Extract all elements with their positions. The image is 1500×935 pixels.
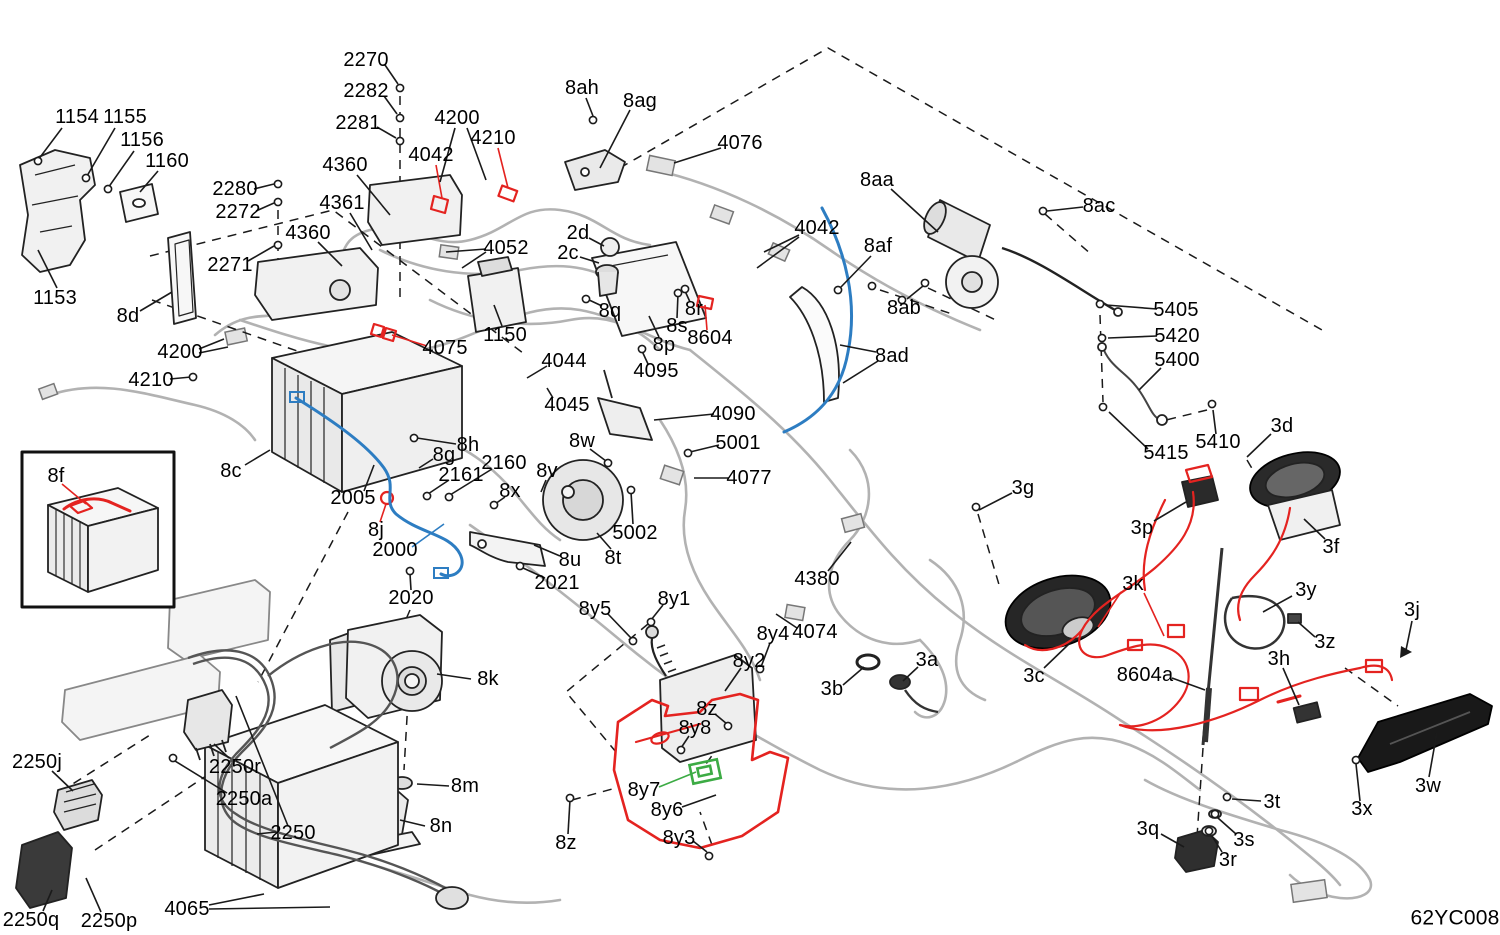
part-label-8ac: 8ac xyxy=(1083,196,1116,216)
part-label-8x: 8x xyxy=(499,481,521,501)
part-label-4042: 4042 xyxy=(408,145,453,165)
part-label-3t: 3t xyxy=(1263,792,1280,812)
part-label-4200: 4200 xyxy=(157,342,202,362)
part-label-4074: 4074 xyxy=(792,622,837,642)
part-label-8y1: 8y1 xyxy=(658,589,691,609)
part-label-4075: 4075 xyxy=(422,338,467,358)
part-label-2281: 2281 xyxy=(335,113,380,133)
part-label-3x: 3x xyxy=(1351,799,1373,819)
part-label-4045: 4045 xyxy=(544,395,589,415)
part-label-8y7: 8y7 xyxy=(628,780,661,800)
part-label-4076: 4076 xyxy=(717,133,762,153)
part-label-2021: 2021 xyxy=(534,573,579,593)
part-label-1155: 1155 xyxy=(103,107,147,127)
part-label-3g: 3g xyxy=(1012,478,1035,498)
part-label-8z: 8z xyxy=(555,833,577,853)
part-label-4210: 4210 xyxy=(128,370,173,390)
part-label-8m: 8m xyxy=(451,776,479,796)
part-label-4200: 4200 xyxy=(434,108,479,128)
part-label-2271: 2271 xyxy=(207,255,252,275)
part-label-4044: 4044 xyxy=(541,351,586,371)
part-label-1160: 1160 xyxy=(145,151,189,171)
part-label-8y4: 8y4 xyxy=(757,624,790,644)
part-label-3d: 3d xyxy=(1271,416,1294,436)
part-label-2005: 2005 xyxy=(330,488,375,508)
part-label-2280: 2280 xyxy=(212,179,257,199)
part-label-8ab: 8ab xyxy=(887,298,921,318)
part-label-8d: 8d xyxy=(117,306,140,326)
part-label-2250: 2250 xyxy=(270,823,315,843)
part-label-3k: 3k xyxy=(1122,574,1144,594)
part-label-4095: 4095 xyxy=(633,361,678,381)
part-label-3a: 3a xyxy=(916,650,939,670)
part-label-3z: 3z xyxy=(1314,632,1336,652)
part-label-3q: 3q xyxy=(1137,819,1160,839)
part-label-8u: 8u xyxy=(559,550,582,570)
part-label-1153: 1153 xyxy=(33,288,77,308)
part-label-8ad: 8ad xyxy=(875,346,909,366)
part-label-8v: 8v xyxy=(536,461,558,481)
part-label-2161: 2161 xyxy=(438,465,483,485)
part-label-3h: 3h xyxy=(1268,649,1291,669)
part-label-8f: 8f xyxy=(47,466,64,486)
part-label-8604: 8604 xyxy=(687,328,732,348)
part-label-1154: 1154 xyxy=(55,107,99,127)
part-label-3r: 3r xyxy=(1219,850,1237,870)
part-label-2250p: 2250p xyxy=(81,911,138,931)
part-label-8q: 8q xyxy=(599,301,622,321)
part-label-4065: 4065 xyxy=(164,899,209,919)
part-label-5405: 5405 xyxy=(1153,300,1198,320)
part-label-8j: 8j xyxy=(368,520,384,540)
part-label-3y: 3y xyxy=(1295,580,1317,600)
part-label-4210: 4210 xyxy=(470,128,515,148)
part-label-8y8: 8y8 xyxy=(679,718,712,738)
part-label-5420: 5420 xyxy=(1154,326,1199,346)
part-label-3f: 3f xyxy=(1322,537,1339,557)
part-label-1156: 1156 xyxy=(120,130,164,150)
part-label-8s: 8s xyxy=(666,316,688,336)
part-label-3c: 3c xyxy=(1023,666,1045,686)
part-label-2250a: 2250a xyxy=(216,789,273,809)
part-label-4360: 4360 xyxy=(322,155,367,175)
part-label-8n: 8n xyxy=(430,816,453,836)
part-label-8ag: 8ag xyxy=(623,91,657,111)
part-label-8h: 8h xyxy=(457,435,480,455)
part-label-2000: 2000 xyxy=(372,540,417,560)
drawing-code: 62YC008 xyxy=(1411,908,1500,929)
part-label-4090: 4090 xyxy=(710,404,755,424)
part-label-4077: 4077 xyxy=(726,468,771,488)
part-label-8y2: 8y2 xyxy=(733,651,766,671)
part-label-8aa: 8aa xyxy=(860,170,894,190)
part-label-1150: 1150 xyxy=(483,325,527,345)
part-label-5415: 5415 xyxy=(1143,443,1188,463)
parts-diagram-page: 115411551156116011538d227022822281228022… xyxy=(0,0,1500,935)
part-label-8af: 8af xyxy=(864,236,892,256)
part-label-4361: 4361 xyxy=(319,193,364,213)
part-labels-layer: 115411551156116011538d227022822281228022… xyxy=(0,0,1500,935)
part-label-4042: 4042 xyxy=(794,218,839,238)
part-label-2020: 2020 xyxy=(388,588,433,608)
part-label-4360: 4360 xyxy=(285,223,330,243)
part-label-8c: 8c xyxy=(220,461,242,481)
part-label-2270: 2270 xyxy=(343,50,388,70)
part-label-4380: 4380 xyxy=(794,569,839,589)
part-label-5001: 5001 xyxy=(715,433,760,453)
part-label-8w: 8w xyxy=(569,431,595,451)
part-label-3p: 3p xyxy=(1131,518,1154,538)
part-label-8604a: 8604a xyxy=(1117,665,1174,685)
part-label-2250r: 2250r xyxy=(209,757,261,777)
part-label-2250q: 2250q xyxy=(3,910,60,930)
part-label-8k: 8k xyxy=(477,669,499,689)
part-label-3j: 3j xyxy=(1404,600,1420,620)
part-label-8g: 8g xyxy=(433,445,456,465)
part-label-3s: 3s xyxy=(1233,830,1255,850)
part-label-8y5: 8y5 xyxy=(579,599,612,619)
part-label-8y3: 8y3 xyxy=(663,828,696,848)
part-label-5400: 5400 xyxy=(1154,350,1199,370)
part-label-2d: 2d xyxy=(567,223,590,243)
part-label-8y6: 8y6 xyxy=(651,800,684,820)
part-label-3w: 3w xyxy=(1415,776,1441,796)
part-label-2c: 2c xyxy=(557,243,579,263)
part-label-2282: 2282 xyxy=(343,81,388,101)
part-label-3b: 3b xyxy=(821,679,844,699)
part-label-5410: 5410 xyxy=(1195,432,1240,452)
part-label-8p: 8p xyxy=(653,335,676,355)
part-label-8z: 8z xyxy=(696,699,718,719)
part-label-4052: 4052 xyxy=(483,238,528,258)
part-label-8t: 8t xyxy=(604,548,621,568)
part-label-2160: 2160 xyxy=(481,453,526,473)
part-label-2250j: 2250j xyxy=(12,752,62,772)
part-label-5002: 5002 xyxy=(612,523,657,543)
part-label-2272: 2272 xyxy=(215,202,260,222)
part-label-8ah: 8ah xyxy=(565,78,599,98)
